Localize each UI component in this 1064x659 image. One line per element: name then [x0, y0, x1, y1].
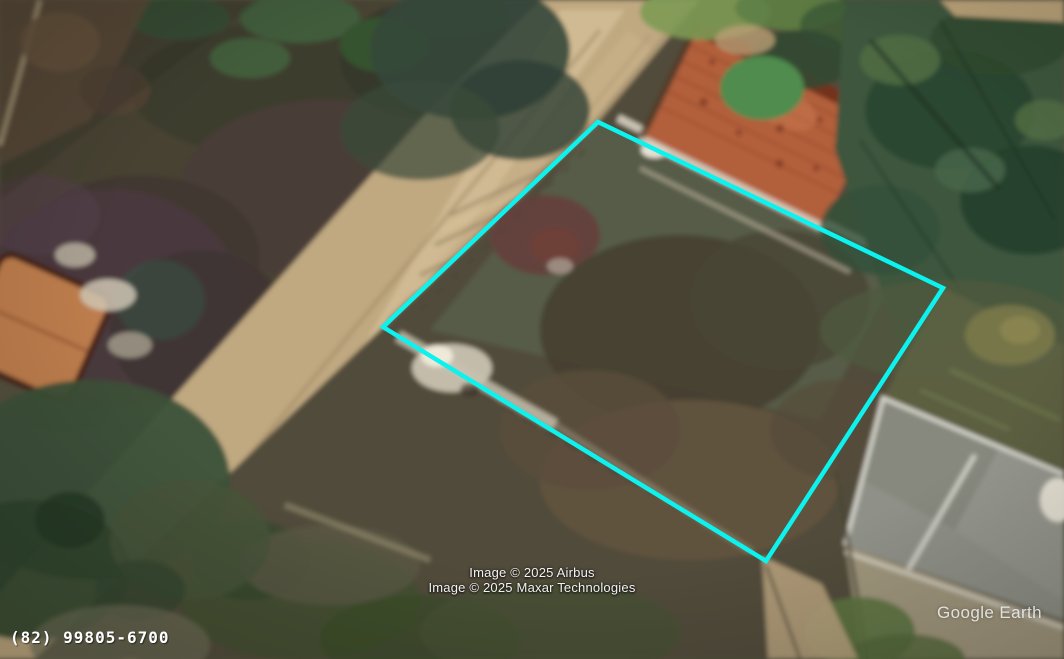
vignette	[0, 0, 1064, 659]
satellite-imagery	[0, 0, 1064, 659]
google-earth-viewport[interactable]: Image © 2025 Airbus Image © 2025 Maxar T…	[0, 0, 1064, 659]
